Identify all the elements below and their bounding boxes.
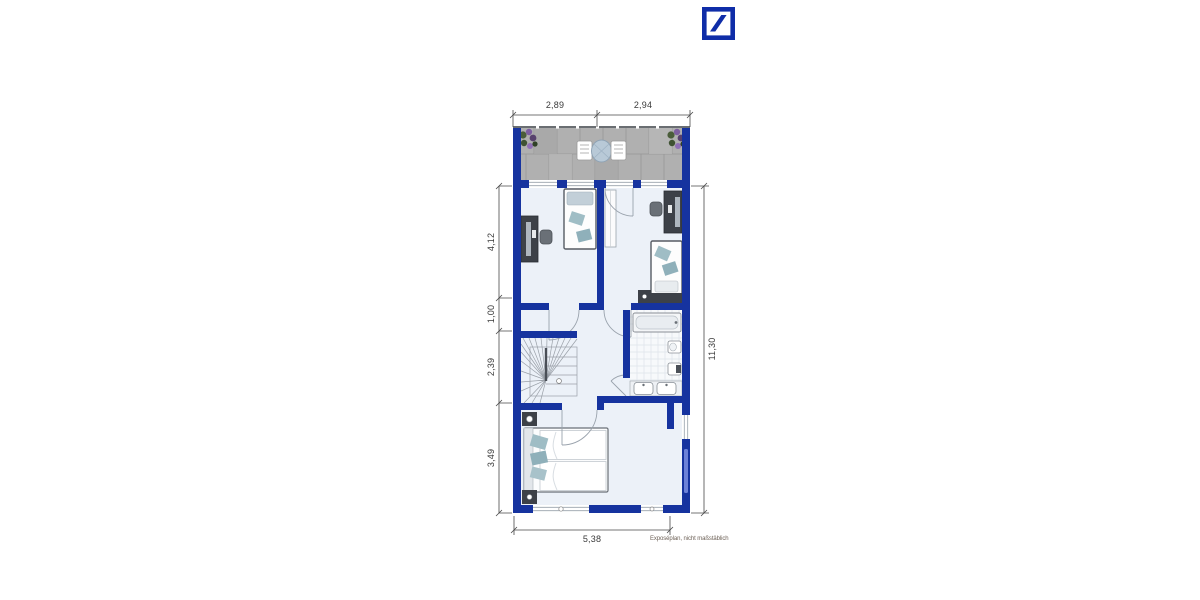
expose-page: 2,89 2,94 4,12 1,00 2,39 3,49 11,30 5,38… (0, 0, 1200, 600)
window (533, 505, 589, 513)
disclaimer-text: Exposéplan, nicht maßstäblich (650, 536, 728, 542)
office-chair-icon (650, 202, 662, 216)
chair-icon (611, 141, 626, 160)
nightstand-icon (522, 490, 537, 504)
double-bed-icon (524, 428, 608, 492)
balcony (513, 126, 690, 180)
toilet-icon (668, 363, 681, 375)
window (567, 180, 594, 188)
dimension-label-left-1: 4,12 (486, 233, 496, 251)
wall-watermark (684, 449, 688, 493)
dimension-label-right-1: 11,30 (707, 338, 717, 361)
desk-icon (521, 216, 538, 262)
nightstand-icon (638, 290, 651, 303)
window (682, 415, 690, 439)
dimension-label-left-4: 3,49 (486, 449, 496, 467)
window (529, 180, 557, 188)
dimension-label-top-1: 2,89 (546, 100, 564, 110)
single-bed-icon (564, 189, 596, 249)
dimension-label-left-2: 1,00 (486, 305, 496, 323)
dimension-label-bottom-1: 5,38 (583, 534, 601, 544)
dimension-label-left-3: 2,39 (486, 358, 496, 376)
bathtub-icon (633, 313, 681, 332)
sink-icon (630, 381, 682, 396)
single-bed-icon (651, 241, 682, 304)
toilet-icon (668, 341, 681, 353)
chair-icon (577, 141, 592, 160)
window (641, 180, 667, 188)
floor-plan (480, 95, 750, 555)
nightstand-icon (522, 412, 537, 426)
window (641, 505, 663, 513)
deutsche-bank-logo (702, 7, 735, 40)
office-chair-icon (540, 230, 552, 244)
desk-icon (664, 191, 682, 233)
dimension-label-top-2: 2,94 (634, 100, 652, 110)
table-icon (592, 140, 612, 162)
window (606, 180, 633, 188)
